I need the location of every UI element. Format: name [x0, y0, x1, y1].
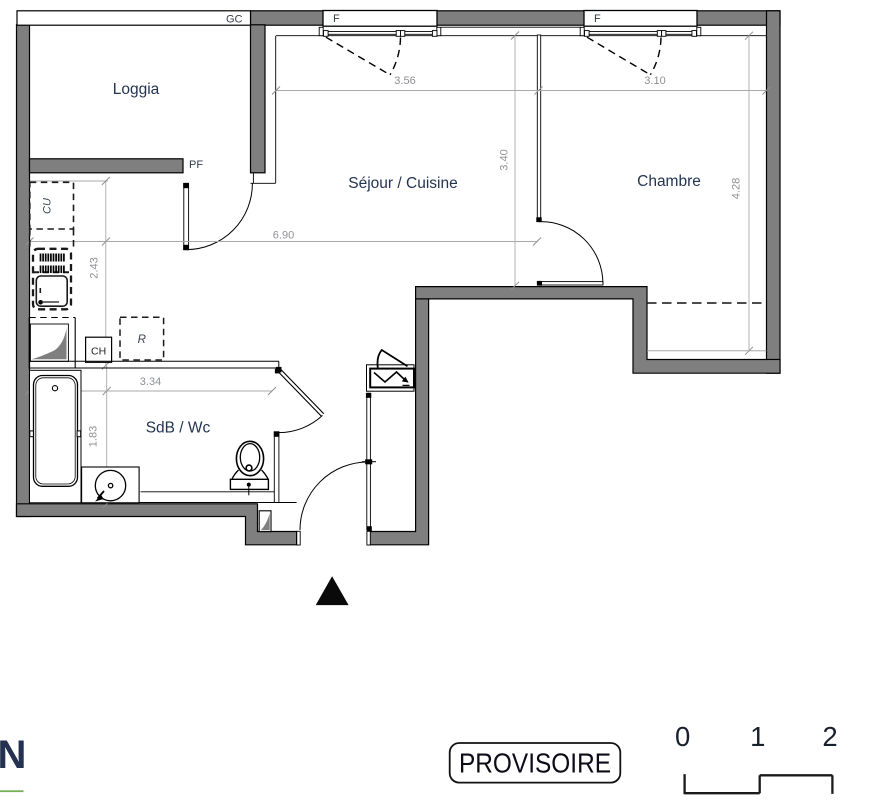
- svg-text:Loggia: Loggia: [113, 81, 160, 98]
- svg-text:3.10: 3.10: [644, 75, 665, 87]
- svg-text:R: R: [138, 334, 146, 346]
- svg-text:4.28: 4.28: [731, 178, 743, 199]
- svg-text:1: 1: [750, 721, 765, 752]
- svg-text:1.83: 1.83: [88, 426, 100, 447]
- svg-text:F: F: [333, 13, 340, 25]
- svg-text:2.43: 2.43: [89, 257, 101, 278]
- svg-text:CU: CU: [42, 198, 54, 214]
- svg-text:Séjour / Cuisine: Séjour / Cuisine: [348, 175, 457, 192]
- svg-text:PF: PF: [189, 159, 203, 171]
- svg-text:6.90: 6.90: [273, 230, 294, 242]
- svg-text:SdB / Wc: SdB / Wc: [146, 420, 211, 437]
- svg-text:GC: GC: [226, 14, 243, 26]
- svg-text:PROVISOIRE: PROVISOIRE: [459, 747, 611, 778]
- svg-text:3.56: 3.56: [394, 75, 415, 87]
- svg-text:Chambre: Chambre: [637, 173, 701, 190]
- svg-text:F: F: [594, 13, 601, 25]
- svg-text:2: 2: [822, 721, 837, 752]
- svg-text:N: N: [0, 733, 26, 777]
- svg-text:CH: CH: [91, 345, 106, 357]
- svg-text:0: 0: [675, 721, 690, 752]
- svg-text:3.34: 3.34: [140, 376, 161, 388]
- svg-text:3.40: 3.40: [499, 149, 511, 170]
